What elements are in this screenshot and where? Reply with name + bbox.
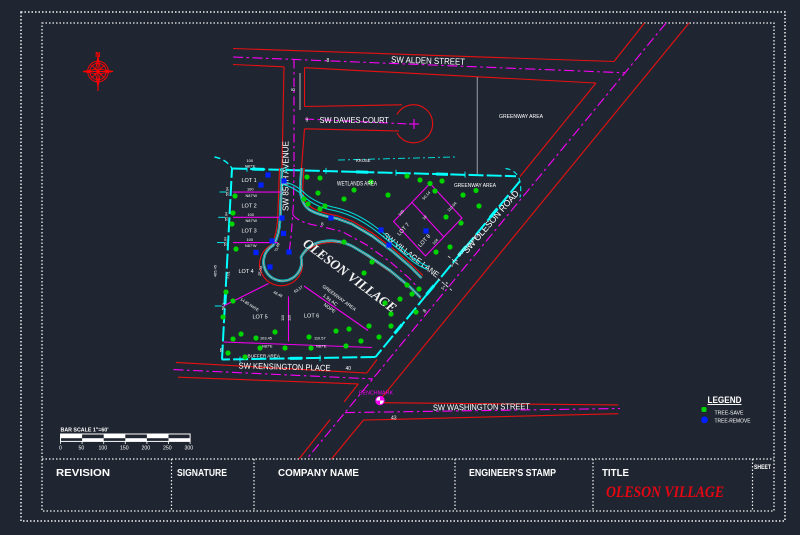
svg-text:COMPANY NAME: COMPANY NAME — [278, 468, 359, 479]
svg-text:100: 100 — [248, 212, 255, 217]
svg-text:REVISION: REVISION — [56, 468, 110, 479]
svg-text:BENCHMARK: BENCHMARK — [359, 391, 394, 397]
svg-text:150: 150 — [120, 446, 129, 452]
svg-text:8: 8 — [327, 58, 330, 64]
svg-text:SW WASHINGTON STREET: SW WASHINGTON STREET — [433, 401, 530, 412]
svg-text:LEGEND: LEGEND — [708, 395, 742, 406]
svg-text:100: 100 — [247, 158, 254, 163]
svg-text:SIGNATURE: SIGNATURE — [177, 468, 227, 479]
svg-text:BUFFER AREA: BUFFER AREA — [248, 354, 281, 359]
svg-text:55.04: 55.04 — [226, 187, 230, 196]
svg-text:GREENWAY AREA: GREENWAY AREA — [499, 114, 544, 120]
svg-text:N87'W: N87'W — [245, 243, 257, 248]
svg-text:100: 100 — [247, 237, 254, 242]
svg-text:465.45: 465.45 — [213, 265, 218, 277]
svg-text:OLESON VILLAGE: OLESON VILLAGE — [606, 484, 724, 501]
svg-text:103.45: 103.45 — [260, 336, 272, 341]
svg-text:40: 40 — [346, 366, 352, 372]
svg-text:250: 250 — [163, 446, 172, 452]
svg-text:SW DAVIES COURT: SW DAVIES COURT — [320, 115, 390, 125]
svg-text:9: 9 — [306, 118, 309, 124]
svg-text:LOT 5: LOT 5 — [253, 315, 268, 321]
svg-text:ENGINEER'S STAMP: ENGINEER'S STAMP — [469, 468, 556, 479]
svg-text:110: 110 — [280, 314, 285, 321]
svg-text:50: 50 — [79, 446, 85, 452]
svg-text:TITLE: TITLE — [602, 468, 629, 479]
svg-text:N87'E: N87'E — [245, 164, 256, 169]
svg-text:8: 8 — [291, 88, 297, 91]
svg-text:WETLANDS AREA: WETLANDS AREA — [337, 182, 377, 188]
svg-text:SHEET: SHEET — [754, 464, 771, 471]
svg-text:200: 200 — [142, 446, 151, 452]
svg-text:LOT 1: LOT 1 — [242, 178, 257, 184]
svg-text:100: 100 — [247, 187, 254, 192]
svg-text:LOT 2: LOT 2 — [242, 204, 257, 210]
svg-text:300: 300 — [185, 446, 194, 452]
svg-text:KRUSE: KRUSE — [356, 158, 371, 163]
svg-text:55: 55 — [220, 348, 224, 352]
svg-text:55.04: 55.04 — [225, 212, 229, 221]
svg-text:LOT 3: LOT 3 — [242, 229, 257, 235]
svg-text:N87'W: N87'W — [246, 193, 258, 198]
svg-text:100: 100 — [99, 446, 108, 452]
svg-text:58.1: 58.1 — [222, 303, 226, 310]
svg-text:TREE-SAVE: TREE-SAVE — [715, 411, 745, 417]
svg-text:LOT 6: LOT 6 — [304, 314, 319, 320]
svg-text:GREENWAY AREA: GREENWAY AREA — [454, 183, 497, 189]
svg-text:8: 8 — [321, 222, 324, 227]
svg-text:43: 43 — [391, 416, 397, 422]
svg-text:0: 0 — [59, 446, 62, 452]
svg-text:BAR SCALE 1"=60': BAR SCALE 1"=60' — [61, 428, 110, 434]
svg-text:N87'W: N87'W — [246, 218, 258, 223]
svg-text:55.04: 55.04 — [224, 237, 228, 246]
svg-text:110: 110 — [287, 314, 292, 321]
svg-text:110.57: 110.57 — [314, 336, 326, 341]
svg-text:N: N — [95, 52, 100, 59]
svg-text:TREE-REMOVE: TREE-REMOVE — [715, 419, 752, 425]
svg-text:N87'E: N87'E — [262, 344, 273, 349]
svg-text:N87'E: N87'E — [316, 344, 327, 349]
svg-text:LOT 4: LOT 4 — [239, 269, 254, 275]
svg-text:7.01: 7.01 — [225, 271, 231, 279]
